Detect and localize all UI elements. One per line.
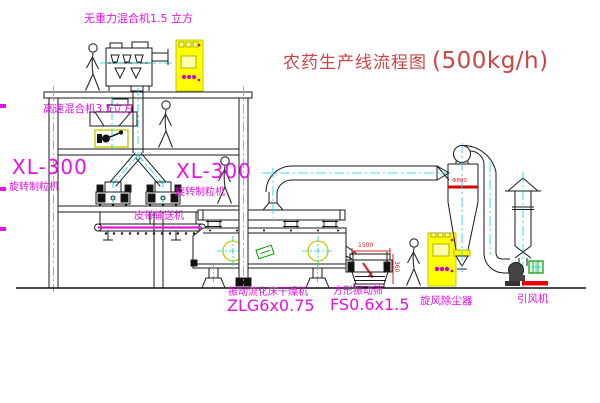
person-figure-1 (86, 44, 100, 91)
dimension-sieve-length: 1500 (358, 243, 373, 249)
gravity-mixer-machine (100, 42, 172, 91)
vibrating-sieve-machine (346, 248, 393, 287)
title-chinese: 农药生产线流程图 (283, 48, 427, 73)
dimension-sieve-height: 360 (393, 261, 399, 272)
label-granulator-right-model: XL-300 (176, 161, 252, 181)
label-fan: 引风机 (517, 294, 549, 305)
pesticide-line-flow-diagram: 农药生产线流程图 (500kg/h) 无重力混合机1.5 立方 高速混合机3.5… (0, 0, 600, 403)
label-cyclone: 旋风除尘器 (420, 296, 473, 307)
label-belt-conveyor: 皮带输送机 (134, 212, 184, 222)
title-capacity: (500kg/h) (432, 48, 549, 74)
diagram-title: 农药生产线流程图 (500kg/h) (283, 48, 549, 74)
label-granulator-right-name: 旋转制粒机 (175, 188, 225, 198)
granulator-left (96, 180, 131, 207)
label-high-speed-mixer: 高速混合机3.5立方 (43, 104, 133, 115)
label-gravity-mixer: 无重力混合机1.5 立方 (84, 13, 193, 24)
person-figure-2 (159, 101, 173, 148)
label-granulator-left-model: XL-300 (12, 157, 88, 177)
person-figure-4 (407, 239, 421, 286)
dimension-cyclone-diameter: Φ800 (452, 179, 467, 185)
label-granulator-left-name: 旋转制粒机 (9, 183, 59, 193)
fluid-bed-dryer-machine (191, 203, 357, 288)
clipped-text-marks (0, 104, 6, 231)
label-sieve-model: FS0.6x1.5 (330, 297, 409, 313)
control-cabinet-2 (428, 233, 456, 286)
label-dryer-model: ZLG6x0.75 (227, 298, 315, 314)
control-cabinet-1 (176, 40, 203, 91)
